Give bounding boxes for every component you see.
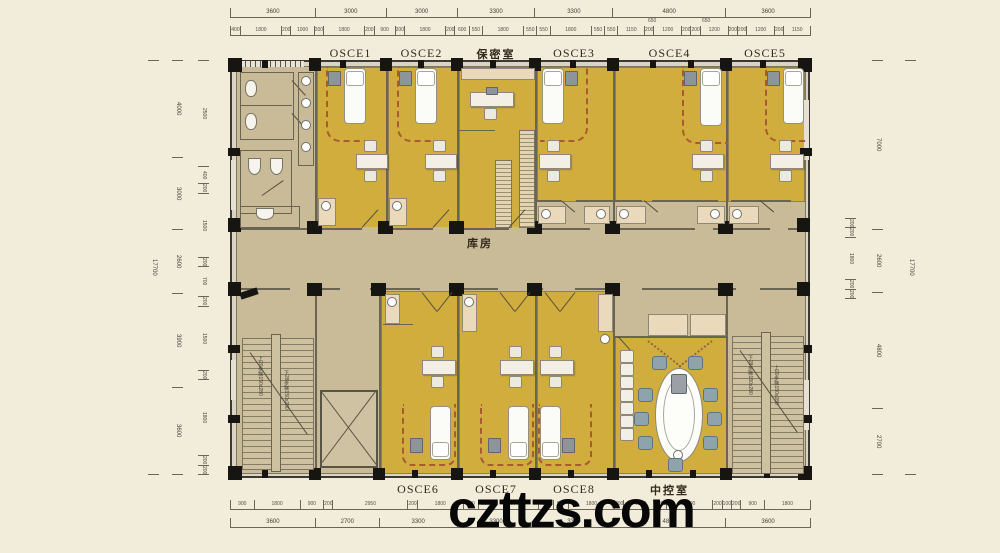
wall-segment — [535, 66, 537, 228]
chair — [433, 140, 446, 152]
dimension-value: 2950 — [332, 500, 407, 510]
chair — [484, 108, 497, 120]
equipment-cart — [562, 438, 575, 453]
desk — [770, 154, 804, 169]
column — [451, 468, 463, 480]
dimension-value: 600 — [454, 26, 468, 36]
equipment-cart — [684, 71, 697, 86]
dimension-value: 200 — [323, 500, 332, 510]
cabinet — [598, 294, 613, 332]
urinal — [248, 158, 261, 175]
stair-left-divider — [271, 334, 281, 472]
dimension-value: 3300 — [457, 8, 535, 18]
dimension-value: 900 — [300, 500, 324, 510]
cabinet — [690, 314, 726, 336]
column — [228, 466, 242, 480]
equipment-cart — [328, 71, 341, 86]
dimension-col-right-total: 17700 — [905, 60, 916, 475]
room-label-osce4: OSCE4 — [613, 46, 726, 61]
sink — [301, 76, 311, 86]
dimension-value: 7000 — [872, 60, 883, 229]
dimension-value: 400 — [230, 26, 240, 36]
sink — [710, 209, 720, 219]
column — [690, 470, 696, 478]
chair — [549, 346, 562, 358]
dimension-value: 900 — [230, 500, 254, 510]
dimension-value: 550 — [469, 26, 482, 36]
chair — [652, 356, 667, 370]
dimension-value: 200 — [845, 218, 856, 227]
dimension-value: 200 — [845, 227, 856, 236]
dimension-row-top-detail: 4001800200100020018002009002001800200600… — [230, 26, 811, 36]
anteroom-wall — [652, 200, 718, 202]
sink — [732, 209, 742, 219]
room-label-osce1: OSCE1 — [315, 46, 386, 61]
anteroom-wall — [535, 200, 561, 202]
equipment-cart — [488, 438, 501, 453]
column — [228, 58, 242, 72]
wall-segment — [613, 66, 615, 228]
chair — [431, 376, 444, 388]
chair — [638, 436, 653, 450]
dimension-value: 17700 — [905, 60, 916, 474]
dimension-value: 1800 — [198, 379, 209, 455]
dimension-value: 1200 — [700, 26, 728, 36]
door-opening — [618, 287, 642, 291]
chair — [509, 346, 522, 358]
sink — [321, 201, 331, 211]
cabinet — [648, 314, 688, 336]
dimension-value: 2500 — [198, 60, 209, 166]
column — [607, 468, 619, 480]
stair-right-down-label: 下28步梯150x280 — [747, 355, 754, 395]
dimension-value: 550 — [536, 26, 549, 36]
column — [568, 470, 574, 478]
dimension-value: 200 — [364, 26, 373, 36]
dimension-value: 1800 — [404, 26, 445, 36]
chair — [364, 140, 377, 152]
dimension-value: 3600 — [230, 518, 315, 528]
equipment-cart — [767, 71, 780, 86]
dimension-value: 1800 — [764, 500, 810, 510]
dimension-value: 3000 — [386, 8, 457, 18]
wall-chair — [620, 376, 634, 389]
door-opening — [420, 287, 452, 291]
dimension-value: 200 — [198, 183, 209, 192]
dimension-col-right-main: 7000260048002700 — [872, 60, 883, 475]
dimension-value: 1000 — [290, 26, 313, 36]
exam-bed — [344, 68, 366, 124]
chair — [703, 436, 718, 450]
dimension-value: 200 — [198, 465, 209, 474]
dimension-value: 100 — [722, 500, 731, 510]
equipment-cart — [565, 71, 578, 86]
dimension-value: 3300 — [379, 518, 457, 528]
watermark: czttzs.com — [448, 480, 694, 540]
stair-left-up-label: 上20步梯150x280 — [257, 356, 264, 396]
exam-bed — [430, 406, 451, 460]
door-opening — [543, 287, 575, 291]
floor-plan-page: 3600300030003300330048003600 40018002001… — [0, 0, 1000, 553]
dimension-value: 700 — [198, 266, 209, 296]
chair — [707, 412, 722, 426]
sink — [596, 209, 606, 219]
dimension-value: 900 — [740, 500, 764, 510]
door-opening — [695, 227, 713, 231]
dimension-value: 1800 — [323, 26, 364, 36]
column — [449, 221, 464, 234]
stall-divider — [240, 105, 292, 106]
room-label-osce5: OSCE5 — [726, 46, 804, 61]
dimension-value: 200 — [314, 26, 323, 36]
sink — [387, 297, 397, 307]
dimension-value: 200 — [395, 26, 404, 36]
door-opening — [340, 287, 370, 291]
column — [490, 470, 496, 478]
dimension-sub-value: 650 — [648, 18, 656, 24]
dimension-value: 2600 — [172, 229, 183, 292]
exam-bed — [415, 68, 437, 124]
dimension-value: 200 — [690, 26, 699, 36]
chair — [433, 170, 446, 182]
chair — [700, 170, 713, 182]
chair — [779, 140, 792, 152]
desk — [422, 360, 456, 375]
wall-segment — [386, 66, 388, 228]
chair — [364, 170, 377, 182]
exam-bed — [508, 406, 529, 460]
chair — [668, 458, 683, 472]
dimension-value: 200 — [445, 26, 454, 36]
dimension-value: 200 — [731, 500, 740, 510]
wall-segment — [535, 290, 537, 472]
dimension-value: 2700 — [872, 408, 883, 474]
storage-counter — [461, 68, 535, 80]
equipment-cart — [399, 71, 412, 86]
desk — [356, 154, 388, 169]
chair — [634, 412, 649, 426]
door-opening — [498, 287, 530, 291]
stair-right-divider — [761, 332, 771, 474]
column — [309, 58, 321, 71]
dimension-value: 4800 — [612, 8, 725, 18]
lectern — [671, 374, 687, 394]
column — [490, 60, 496, 68]
dimension-value: 3000 — [172, 157, 183, 230]
column — [720, 468, 732, 480]
sink — [600, 334, 610, 344]
dimension-value: 4000 — [172, 60, 183, 157]
toilet — [245, 80, 257, 97]
wall-segment — [457, 290, 459, 472]
sink — [541, 209, 551, 219]
room-label-osce2: OSCE2 — [386, 46, 457, 61]
column — [797, 218, 810, 232]
exam-bed — [542, 68, 564, 124]
mop-sink — [256, 208, 274, 220]
dimension-value: 550 — [604, 26, 617, 36]
toilet — [245, 113, 257, 130]
dimension-value: 200 — [774, 26, 783, 36]
equipment-cart — [410, 438, 423, 453]
chair — [549, 376, 562, 388]
desk — [692, 154, 724, 169]
dimension-sub-value: 650 — [702, 18, 710, 24]
column — [797, 282, 810, 296]
exam-bed — [700, 68, 722, 126]
dimension-value: 3600 — [725, 518, 810, 528]
column — [371, 283, 386, 296]
urinal — [270, 158, 283, 175]
wall-chair — [620, 428, 634, 441]
dimension-col-right-detail: 2002001800200200 — [845, 218, 856, 299]
column — [607, 58, 619, 71]
dimension-value: 3600 — [230, 8, 315, 18]
window-strip — [240, 61, 304, 67]
dimension-value: 1500 — [198, 306, 209, 370]
dimension-value: 1200 — [653, 26, 681, 36]
wall-chair — [620, 402, 634, 415]
dimension-value: 200 — [845, 279, 856, 288]
dimension-value: 1200 — [746, 26, 774, 36]
dimension-value: 3900 — [172, 293, 183, 387]
chair — [703, 388, 718, 402]
dimension-value: 3300 — [534, 8, 612, 18]
desk — [500, 360, 534, 375]
control-room-wall — [613, 336, 726, 338]
window-strip — [231, 160, 236, 210]
storage-room-label: 库房 — [455, 235, 505, 251]
dimension-value: 900 — [374, 26, 395, 36]
sink — [464, 297, 474, 307]
dimension-value: 400 — [198, 166, 209, 184]
dimension-col-left-main: 40003000260039003600 — [172, 60, 183, 475]
wall-segment — [726, 290, 728, 472]
sink — [619, 209, 629, 219]
dimension-value: 4800 — [872, 292, 883, 408]
wall-chair — [620, 415, 634, 428]
dimension-value: 1150 — [617, 26, 644, 36]
dimension-value: 200 — [198, 257, 209, 266]
dimension-value: 200 — [644, 26, 653, 36]
desk — [540, 360, 574, 375]
wall-segment — [379, 290, 381, 472]
wall-segment — [457, 66, 459, 228]
dimension-value: 200 — [198, 296, 209, 305]
wall-segment — [315, 66, 317, 228]
chair — [779, 170, 792, 182]
dimension-value: 1800 — [482, 26, 523, 36]
chair — [431, 346, 444, 358]
column — [529, 468, 541, 480]
dimension-value: 200 — [198, 455, 209, 464]
exam-bed — [540, 406, 561, 460]
column — [380, 58, 392, 71]
column — [262, 60, 268, 68]
dimension-value: 200 — [198, 370, 209, 379]
dimension-value: 200 — [407, 500, 416, 510]
dimension-value: 550 — [591, 26, 604, 36]
wall-chair — [620, 363, 634, 376]
exam-bed — [783, 68, 804, 124]
column — [228, 415, 240, 423]
chair — [509, 376, 522, 388]
room-label-osce3: OSCE3 — [535, 46, 613, 61]
anteroom-wall — [576, 200, 642, 202]
wall-segment — [613, 290, 615, 472]
desk — [539, 154, 571, 169]
dimension-value: 200 — [281, 26, 290, 36]
column — [718, 283, 733, 296]
wall-segment — [315, 290, 317, 472]
column — [307, 283, 322, 296]
dimension-value: 550 — [523, 26, 536, 36]
dimension-value: 3600 — [172, 387, 183, 474]
dimension-col-left-total: 17700 — [148, 60, 159, 475]
chair — [700, 140, 713, 152]
wall-chair — [620, 350, 634, 363]
column — [228, 148, 240, 156]
chair — [547, 170, 560, 182]
dimension-value: 3600 — [725, 8, 810, 18]
wall-chair — [620, 389, 634, 402]
door-opening — [770, 227, 788, 231]
dimension-value: 2700 — [315, 518, 379, 528]
sink — [392, 201, 402, 211]
dimension-col-left-detail: 2500400200150020070020015002001800200200 — [198, 60, 209, 475]
column — [373, 468, 385, 480]
dimension-value: 1800 — [550, 26, 591, 36]
chair — [638, 388, 653, 402]
monitor — [486, 87, 498, 95]
partition-wall — [383, 324, 413, 325]
dimension-value: 200 — [681, 26, 690, 36]
dimension-value: 3000 — [315, 8, 386, 18]
door-opening — [736, 287, 760, 291]
window-strip — [231, 360, 236, 400]
column — [650, 60, 656, 68]
dimension-value: 200 — [845, 289, 856, 298]
stair-left-down-label: 下28步梯150x280 — [283, 370, 290, 410]
column — [646, 470, 652, 478]
sink — [301, 120, 311, 130]
dimension-value: 1800 — [254, 500, 300, 510]
dimension-value: 2600 — [872, 229, 883, 292]
dimension-value: 1150 — [783, 26, 810, 36]
dimension-value: 200 — [728, 26, 737, 36]
column — [262, 470, 268, 478]
desk — [425, 154, 457, 169]
dimension-value: 1800 — [845, 237, 856, 280]
sink — [301, 98, 311, 108]
dimension-value: 1800 — [240, 26, 281, 36]
partition-wall — [459, 130, 495, 131]
dimension-row-top-main: 3600300030003300330048003600 — [230, 8, 811, 18]
column — [412, 470, 418, 478]
column — [228, 345, 240, 353]
room-label-osce6: OSCE6 — [379, 482, 457, 497]
storage-rack — [495, 160, 512, 228]
chair — [547, 140, 560, 152]
sink — [301, 142, 311, 152]
dimension-value: 200 — [712, 500, 721, 510]
dimension-value: 200 — [737, 26, 746, 36]
stair-right-up-label: 上20步梯150x280 — [773, 365, 780, 405]
chair — [688, 356, 703, 370]
dimension-value: 1500 — [198, 193, 209, 257]
dimension-value: 17700 — [148, 60, 159, 474]
